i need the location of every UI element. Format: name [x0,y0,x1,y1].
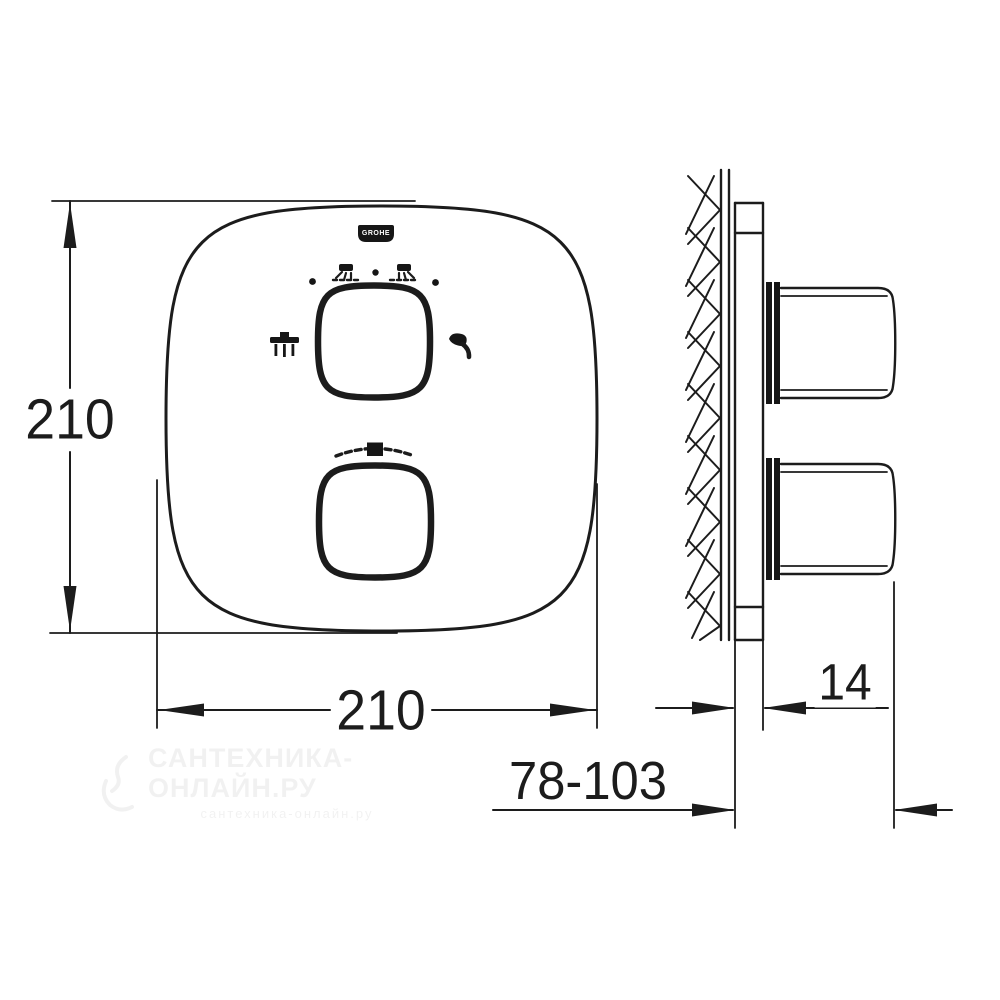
index-dot-right [432,279,439,286]
front-view [166,206,597,631]
top-knob [318,286,430,398]
bottom-knob [319,466,431,578]
spray-pattern-icon-right [390,264,417,280]
face-plate-outline [166,206,597,631]
bottom-knob-side [766,458,895,580]
drawing-linework [0,0,1000,1000]
side-view [686,170,895,640]
temperature-scale-arc [336,443,414,457]
watermark: САНТЕХНИКА-ОНЛАЙН.РУ сантехника-онлайн.р… [96,744,426,816]
index-dot-left [309,278,316,285]
index-dot-center [372,269,378,275]
width-dimension-label: 210 [333,683,430,740]
dimensions [50,201,952,828]
watermark-line2: сантехника-онлайн.ру [148,806,426,821]
watermark-line1: САНТЕХНИКА-ОНЛАЙН.РУ [148,744,426,803]
spray-pattern-icon-left [333,264,360,280]
technical-drawing-canvas: 210 210 14 78-103 GROHE САНТЕХНИКА-ОНЛАЙ… [0,0,1000,1000]
grohe-logo-text: GROHE [359,225,393,242]
watermark-icon [96,751,140,815]
thickness-dimension-label: 14 [815,657,876,708]
height-dimension-label: 210 [22,392,119,449]
overhead-shower-icon [270,332,299,357]
wall-hatching [686,176,720,640]
projection-dimension-label: 78-103 [505,754,671,808]
top-knob-side [766,282,895,404]
hand-shower-icon [449,333,469,357]
plate-cross-section [735,203,763,640]
